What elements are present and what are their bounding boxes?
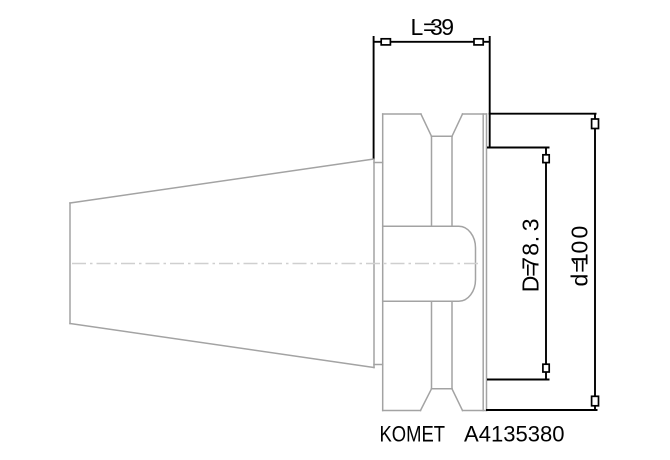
svg-text:L=39: L=39 <box>411 14 455 40</box>
svg-text:d=100: d=100 <box>567 226 593 287</box>
svg-text:A4135380: A4135380 <box>464 422 565 447</box>
svg-text:KOMET: KOMET <box>380 422 446 447</box>
svg-text:D=78.3: D=78.3 <box>518 219 544 293</box>
